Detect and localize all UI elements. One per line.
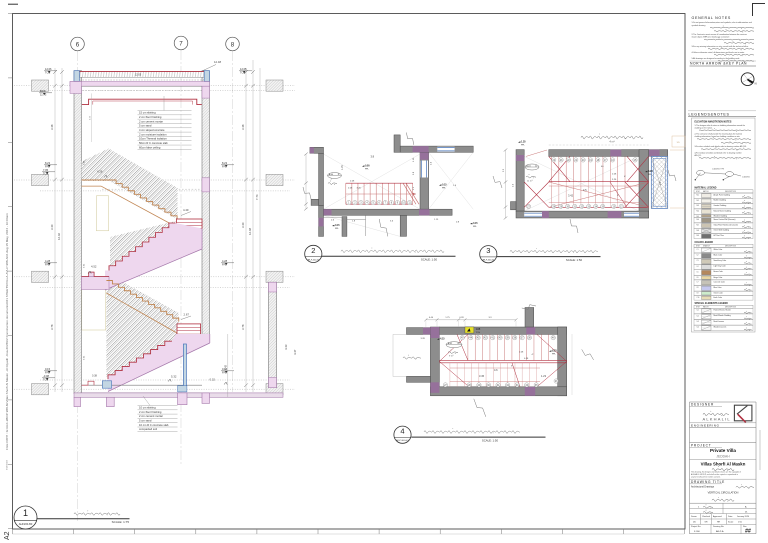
svg-text:3.78: 3.78	[241, 324, 245, 330]
svg-text:12.05: 12.05	[135, 72, 142, 76]
svg-text:2 cm floor finishing: 2 cm floor finishing	[139, 115, 162, 119]
svg-text:3.42: 3.42	[568, 193, 574, 197]
svg-text:GENERAL NOTES: GENERAL NOTES	[692, 16, 732, 20]
svg-text:ENGINEERING: ENGINEERING	[691, 423, 720, 427]
svg-text:12.46: 12.46	[57, 233, 61, 240]
svg-text:5/15/2024: 5/15/2024	[7, 459, 9, 470]
svg-text:2 cm cement mortar: 2 cm cement mortar	[139, 119, 163, 123]
svg-text:10 cm skirting: 10 cm skirting	[139, 406, 156, 410]
svg-text:2.67: 2.67	[184, 313, 190, 317]
svg-text:AR-P-300-00: AR-P-300-00	[482, 259, 495, 262]
svg-text:DESIGNER: DESIGNER	[691, 403, 714, 407]
svg-text:MATERIAL LEGEND: MATERIAL LEGEND	[695, 186, 717, 189]
svg-text:4 m²: 4 m²	[609, 140, 614, 144]
svg-text:1.05: 1.05	[476, 328, 481, 331]
svg-text:60cm false ceiling: 60cm false ceiling	[139, 145, 161, 149]
svg-text:1-Do not general information,n: 1-Do not general information,notes and s…	[692, 21, 752, 24]
svg-text:4.28: 4.28	[45, 259, 51, 263]
svg-text:Wooden Cladding: Wooden Cladding	[714, 216, 727, 218]
svg-text:M-3: M-3	[697, 205, 700, 207]
svg-text:8.23: 8.23	[45, 161, 51, 165]
svg-text:4.47: 4.47	[293, 349, 297, 355]
svg-text:COLOR LEGEND: COLOR LEGEND	[695, 242, 714, 244]
svg-text:Metal Rhomb Cladding: Metal Rhomb Cladding	[714, 314, 731, 317]
svg-text:Metal Louvers: Metal Louvers	[714, 320, 725, 323]
svg-text:4-Unless otherwise noted, all: 4-Unless otherwise noted, all dimensions…	[692, 51, 746, 54]
svg-text:M-2: M-2	[697, 200, 700, 202]
svg-text:M-6: M-6	[697, 219, 700, 221]
svg-text:-0.08: -0.08	[43, 374, 49, 378]
svg-text:50cm R C concrete slab: 50cm R C concrete slab	[139, 141, 168, 145]
svg-text:NORTH ARROW &KEY PLAN: NORTH ARROW &KEY PLAN	[690, 61, 747, 65]
svg-text:Date:: Date:	[728, 515, 733, 518]
svg-text:shown depict. MEP prior landsc: shown depict. MEP prior landscape consul…	[692, 36, 730, 39]
svg-text:TOS: TOS	[476, 332, 481, 334]
svg-text:9 m²: 9 m²	[449, 355, 454, 358]
svg-text:S-2: S-2	[697, 315, 700, 317]
svg-text:Checked: Checked	[702, 516, 710, 518]
svg-text:3: 3	[486, 246, 490, 255]
svg-text:0.15: 0.15	[442, 185, 447, 187]
svg-text:4: 4	[400, 427, 404, 436]
svg-text:9°: 9°	[617, 195, 619, 197]
svg-text:4.6: 4.6	[494, 368, 498, 372]
svg-text:M-4: M-4	[697, 211, 700, 213]
svg-text:3.8: 3.8	[371, 155, 375, 159]
svg-text:AR-P-300-00: AR-P-300-00	[307, 258, 320, 261]
svg-text:AR-P-300-001: AR-P-300-001	[396, 439, 410, 442]
svg-text:S-4: S-4	[697, 327, 700, 329]
svg-text:10cm Thermal isolation: 10cm Thermal isolation	[139, 137, 167, 141]
svg-text:1: 1	[23, 508, 28, 518]
svg-text:Acrylic Paint Cladding: Acrylic Paint Cladding	[714, 193, 730, 196]
svg-text:Green Color: Green Color	[714, 292, 724, 295]
svg-text:7.74: 7.74	[255, 194, 259, 200]
svg-text:C3: C3	[697, 260, 699, 262]
svg-text:3.40: 3.40	[241, 222, 245, 228]
svg-text:Drawn: Drawn	[691, 516, 697, 518]
svg-text:7: 7	[179, 40, 183, 47]
svg-text:symbols drawing.: symbols drawing.	[692, 24, 707, 27]
svg-text:4°: 4°	[624, 176, 626, 178]
svg-text:0.15: 0.15	[335, 225, 340, 227]
svg-text:Green Wall Cladding: Green Wall Cladding	[714, 229, 730, 232]
svg-text:SPECIAL ELEMENTS LEGEND: SPECIAL ELEMENTS LEGEND	[695, 302, 729, 305]
svg-text:0.15: 0.15	[210, 377, 216, 381]
svg-text:15 cm skirting: 15 cm skirting	[139, 111, 156, 115]
svg-text:C7: C7	[697, 282, 699, 284]
svg-text:Stone Curtain Wall (Versano): Stone Curtain Wall (Versano)	[714, 218, 736, 221]
svg-text:Concrete Color: Concrete Color	[714, 280, 726, 283]
svg-text:7.05: 7.05	[43, 168, 49, 172]
svg-text:4.52: 4.52	[91, 265, 97, 269]
svg-text:compacted soil: compacted soil	[139, 427, 157, 431]
svg-text:2-The Contractor must ensure a: 2-The Contractor must ensure all coordin…	[692, 33, 747, 36]
svg-text:2 cm cement mortar: 2 cm cement mortar	[139, 414, 163, 418]
svg-text:4.15: 4.15	[440, 338, 445, 341]
svg-text:C9: C9	[697, 293, 699, 295]
svg-text:4.26: 4.26	[97, 170, 103, 174]
svg-text:DRAWING TITLE: DRAWING TITLE	[691, 480, 725, 484]
svg-text:Approved: Approved	[713, 515, 722, 518]
svg-text:F-300: F-300	[694, 531, 700, 533]
svg-text:C2: C2	[697, 255, 699, 257]
svg-text:0.38: 0.38	[92, 374, 97, 377]
svg-text:Private Villa: Private Villa	[710, 448, 736, 453]
svg-text:Earth Color: Earth Color	[714, 296, 723, 299]
svg-text:Marble Cladding: Marble Cladding	[714, 199, 726, 202]
svg-text:M-7: M-7	[697, 225, 700, 227]
svg-text:3.45: 3.45	[479, 374, 485, 378]
svg-text:3-For door schedule and detail: 3-For door schedule and details refer to…	[695, 145, 748, 148]
svg-text:Black Color: Black Color	[714, 253, 723, 256]
svg-text:C5: C5	[697, 271, 699, 273]
svg-text:3.40: 3.40	[50, 224, 54, 230]
svg-text:Wooden Louvers: Wooden Louvers	[714, 325, 727, 328]
svg-text:4.28: 4.28	[222, 259, 228, 263]
svg-text:Glass Fiber Reinforced Concret: Glass Fiber Reinforced Concrete	[714, 223, 739, 226]
svg-text:ELEVATION ANNOTATION NOTES: ELEVATION ANNOTATION NOTES	[695, 120, 732, 123]
svg-text:0.15: 0.15	[473, 223, 478, 225]
svg-text:C6: C6	[697, 277, 699, 279]
svg-text:AHF200-B3: AHF200-B3	[19, 522, 33, 526]
svg-text:4.43: 4.43	[284, 344, 288, 350]
svg-text:Project No.: Project No.	[691, 525, 701, 528]
svg-text:5°: 5°	[511, 366, 513, 368]
svg-text:##: ##	[745, 529, 751, 535]
svg-text:0.15: 0.15	[45, 367, 51, 371]
svg-text:4.49: 4.49	[183, 208, 189, 212]
svg-text:BOS: BOS	[40, 89, 46, 93]
svg-text:4.5: 4.5	[583, 188, 587, 192]
svg-text:3-For any missing information: 3-For any missing information on site, c…	[692, 45, 750, 48]
svg-text:8.23: 8.23	[552, 351, 557, 353]
svg-text:C4: C4	[697, 266, 699, 268]
svg-text:Pattern Electric Shutter: Pattern Electric Shutter	[714, 309, 732, 312]
svg-text:AR-P-A: AR-P-A	[716, 530, 724, 533]
svg-text:12.48: 12.48	[214, 60, 221, 64]
svg-text:M-9: M-9	[697, 235, 700, 237]
svg-text:Natural Stone Cladding: Natural Stone Cladding	[714, 209, 732, 212]
svg-text:3.48: 3.48	[50, 124, 54, 130]
svg-text:2 cm floor finishing: 2 cm floor finishing	[139, 410, 162, 414]
svg-text:8.23: 8.23	[648, 171, 653, 173]
svg-text:C1: C1	[697, 249, 699, 251]
svg-text:Granite Cladding: Granite Cladding	[714, 204, 727, 207]
svg-text:Scale:: Scale:	[728, 522, 734, 524]
svg-text:Drawing No.: Drawing No.	[713, 526, 724, 528]
svg-text:11 m²: 11 m²	[527, 180, 533, 183]
svg-text:5 cm sand: 5 cm sand	[139, 124, 152, 128]
svg-text:any form without their written: any form without their written consent.	[691, 475, 721, 478]
svg-text:A2: A2	[4, 531, 11, 540]
svg-text:5 cm sand: 5 cm sand	[139, 419, 152, 423]
svg-text:0.00: 0.00	[365, 166, 370, 168]
svg-text:1.35: 1.35	[521, 142, 526, 144]
svg-text:12.48: 12.48	[248, 228, 252, 235]
svg-text:N: N	[755, 82, 757, 86]
svg-text:SCALE: 1:50: SCALE: 1:50	[482, 438, 499, 442]
svg-text:HP 'Exa' Tiles: HP 'Exa' Tiles	[714, 235, 724, 237]
svg-text:cladding on the notion.: cladding on the notion.	[695, 126, 714, 129]
svg-text:4 cm sloped concrete: 4 cm sloped concrete	[139, 128, 165, 132]
svg-text:White Color: White Color	[714, 248, 723, 251]
svg-text:8.23: 8.23	[222, 161, 228, 165]
svg-text:JEDDAH: JEDDAH	[716, 455, 730, 459]
svg-text:cladding information, based on: cladding information, based on cladding …	[695, 135, 741, 138]
svg-text:ALKHALIL: ALKHALIL	[703, 416, 731, 421]
svg-text:12.06: 12.06	[45, 67, 52, 71]
svg-text:S-3: S-3	[697, 321, 700, 323]
svg-text:PROJECT: PROJECT	[691, 443, 711, 447]
svg-text:M-1: M-1	[697, 195, 700, 197]
svg-text:C8: C8	[697, 287, 699, 289]
svg-text:FILE PATH : G:\ALK-980\P 988-M: FILE PATH : G:\ALK-980\P 988-M-Villas Sh…	[5, 213, 9, 450]
svg-text:4°: 4°	[532, 354, 534, 356]
svg-text:Architectural Drawings: Architectural Drawings	[691, 486, 715, 489]
svg-text:1.23: 1.23	[541, 374, 547, 378]
svg-text:4-For window schedule and deta: 4-For window schedule and details refer …	[695, 152, 743, 155]
svg-text:Brown Color: Brown Color	[714, 270, 724, 273]
svg-text:2: 2	[311, 246, 315, 255]
svg-text:Sand-Ivory Color: Sand-Ivory Color	[714, 259, 727, 262]
svg-text:SCALE: 1:50: SCALE: 1:50	[421, 258, 438, 262]
svg-text:VERTICAL CIRCULATION: VERTICAL CIRCULATION	[708, 490, 739, 494]
svg-text:SCALE: 1:75: SCALE: 1:75	[112, 520, 130, 524]
svg-text:8: 8	[231, 41, 235, 48]
svg-text:3.78: 3.78	[50, 324, 54, 330]
svg-text:Blue Color: Blue Color	[714, 286, 722, 289]
svg-text:2 cm moisture isolation: 2 cm moisture isolation	[139, 132, 167, 136]
svg-text:AR-Q11.: AR-Q11.	[695, 154, 702, 157]
svg-text:1.15: 1.15	[341, 165, 344, 170]
svg-text:LEGENDS&NOTES: LEGENDS&NOTES	[689, 112, 730, 116]
svg-text:12.05: 12.05	[240, 67, 247, 71]
svg-text:January 2024: January 2024	[737, 516, 750, 518]
svg-text:SCALE: 1:50: SCALE: 1:50	[566, 258, 583, 262]
svg-text:6: 6	[76, 41, 80, 48]
svg-text:5.32: 5.32	[171, 375, 177, 379]
svg-text:M-8: M-8	[697, 230, 700, 232]
svg-text:Light Gray Color: Light Gray Color	[714, 265, 727, 268]
svg-text:4.43: 4.43	[225, 365, 228, 370]
svg-text:Villas Shorfi Al Maskn: Villas Shorfi Al Maskn	[701, 461, 746, 466]
svg-text:Beige Color: Beige Color	[714, 276, 723, 279]
svg-text:S-1: S-1	[697, 310, 700, 312]
svg-text:5-All drawings are designed ac: 5-All drawings are designed according to…	[692, 57, 741, 60]
svg-text:10 cm R C concrete slab: 10 cm R C concrete slab	[139, 423, 169, 427]
svg-text:3.48: 3.48	[241, 124, 245, 130]
svg-text:C10: C10	[697, 297, 700, 299]
